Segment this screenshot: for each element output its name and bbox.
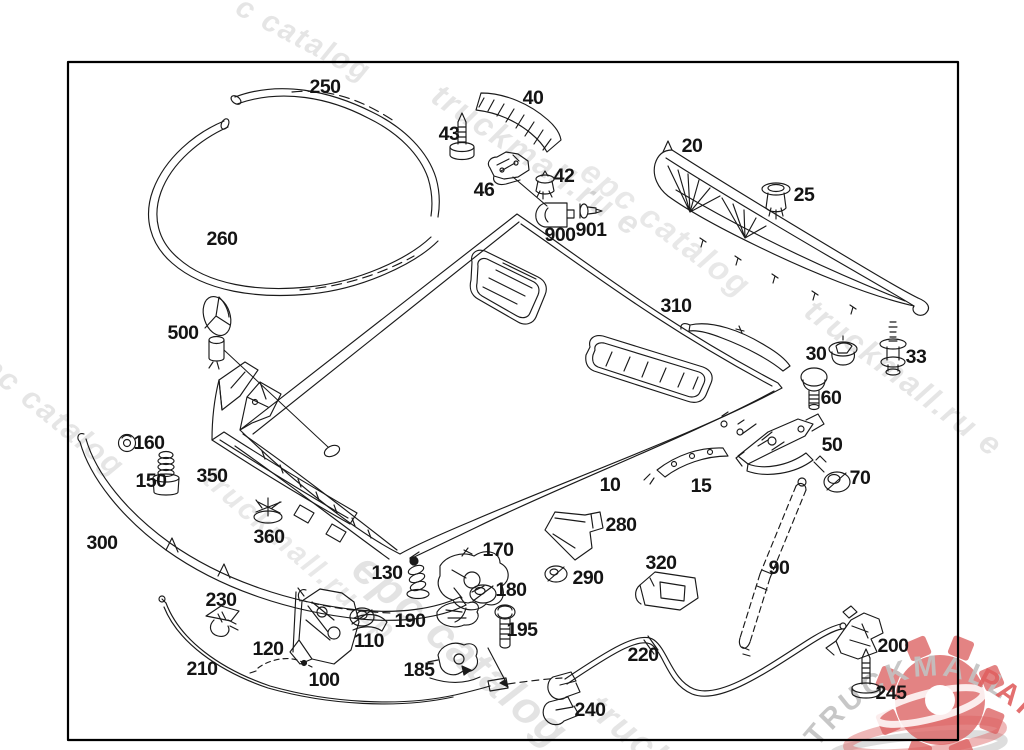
- part-label-25: 25: [794, 184, 815, 206]
- plug-901: [580, 204, 602, 218]
- part-label-170: 170: [482, 539, 514, 561]
- bracket-46: [488, 152, 529, 185]
- part-label-46: 46: [474, 179, 495, 201]
- part-label-20: 20: [682, 135, 703, 157]
- lock-100: [290, 588, 387, 664]
- part-label-245: 245: [875, 682, 907, 704]
- grommet-110: [350, 608, 374, 626]
- part-label-15: 15: [691, 475, 712, 497]
- vent-grille-40: [476, 93, 561, 152]
- part-label-350: 350: [196, 465, 228, 487]
- part-label-30: 30: [806, 343, 827, 365]
- part-label-120: 120: [252, 638, 284, 660]
- bracket-280: [545, 512, 603, 560]
- trim-strip-310: [681, 324, 790, 371]
- part-label-40: 40: [523, 87, 544, 109]
- part-label-900: 900: [544, 224, 576, 246]
- part-label-50: 50: [822, 434, 843, 456]
- part-label-290: 290: [572, 567, 604, 589]
- part-label-230: 230: [205, 589, 237, 611]
- part-label-130: 130: [371, 562, 403, 584]
- grommet-30: [829, 336, 857, 365]
- bolt-195: [488, 605, 515, 687]
- hood-panel-10: [235, 214, 782, 559]
- seal-250-drawing: [229, 89, 439, 217]
- part-label-195: 195: [506, 619, 538, 641]
- part-label-250: 250: [309, 76, 341, 98]
- part-label-260: 260: [206, 228, 238, 250]
- front-panel-350: [212, 362, 357, 542]
- grommet-180: [470, 585, 496, 603]
- part-label-60: 60: [821, 387, 842, 409]
- part-label-160: 160: [133, 432, 165, 454]
- part-label-185: 185: [403, 659, 435, 681]
- seal-260-drawing: [149, 118, 438, 296]
- part-label-320: 320: [645, 552, 677, 574]
- part-label-500: 500: [167, 322, 199, 344]
- part-label-190: 190: [394, 610, 426, 632]
- part-label-240: 240: [574, 699, 606, 721]
- part-label-300: 300: [86, 532, 118, 554]
- bracket-200: [826, 606, 883, 659]
- part-label-220: 220: [627, 644, 659, 666]
- diagram-canvas: TRUCKMALL PARTS: [0, 0, 1024, 750]
- grommet-290: [545, 566, 567, 582]
- part-label-100: 100: [308, 669, 340, 691]
- emblem-hole: [323, 443, 342, 459]
- parts-diagram-page: c catalogtruckmall.ru eepc catalogl epc …: [0, 0, 1024, 750]
- lever-120: [250, 659, 312, 673]
- grommet-70: [814, 456, 850, 492]
- part-label-200: 200: [877, 635, 909, 657]
- part-label-33: 33: [906, 346, 927, 368]
- part-label-43: 43: [439, 123, 460, 145]
- cowl-panel-20: [654, 141, 928, 315]
- part-label-360: 360: [253, 526, 285, 548]
- latch-185: [428, 643, 480, 682]
- part-label-310: 310: [660, 295, 692, 317]
- part-label-180: 180: [495, 579, 527, 601]
- hinge-50: [736, 414, 824, 474]
- buffer-33: [880, 322, 906, 375]
- part-label-10: 10: [600, 474, 621, 496]
- part-label-110: 110: [354, 630, 385, 652]
- release-cable-220: [565, 623, 846, 696]
- bracket-15: [644, 412, 744, 484]
- part-label-42: 42: [554, 165, 575, 187]
- part-label-210: 210: [186, 658, 218, 680]
- part-label-280: 280: [605, 514, 637, 536]
- part-label-901: 901: [575, 219, 607, 241]
- emblem-500: [198, 293, 328, 447]
- part-label-150: 150: [135, 470, 167, 492]
- clip-25: [762, 183, 790, 219]
- clip-42: [536, 171, 554, 199]
- bracket-320: [636, 572, 698, 610]
- part-label-90: 90: [769, 557, 790, 579]
- part-label-70: 70: [850, 467, 871, 489]
- screw-130: [407, 552, 429, 599]
- clip-360: [254, 498, 282, 523]
- labels-layer: 2502604043464290090120253103033605070500…: [86, 76, 927, 721]
